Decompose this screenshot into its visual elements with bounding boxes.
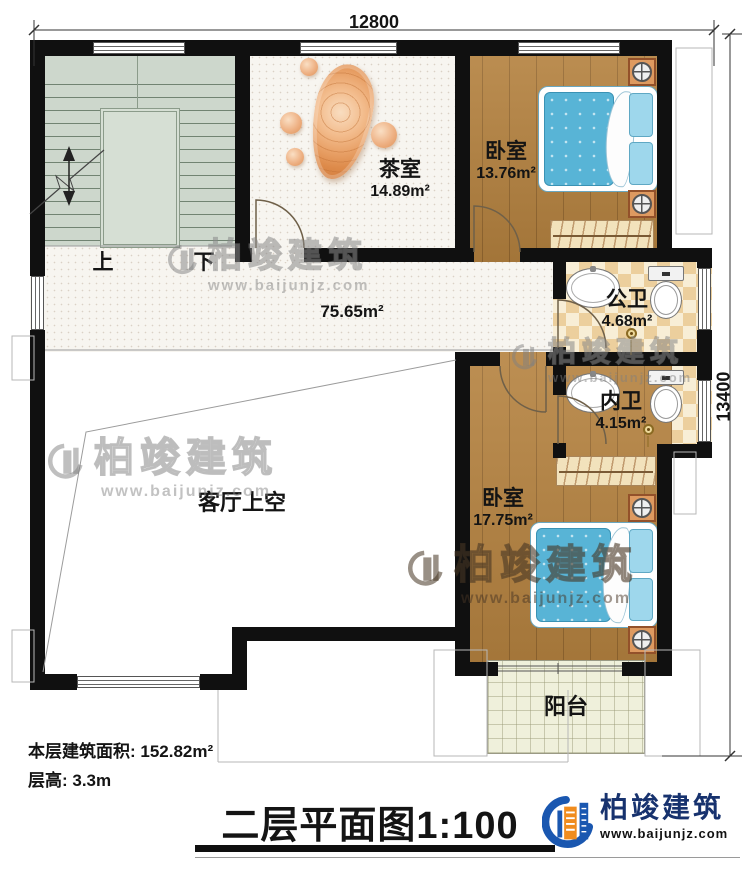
stair-down-label: 下 [194, 251, 215, 276]
exterior-ledge [676, 48, 712, 234]
door-arc [256, 200, 304, 248]
lower-roof-outline [218, 690, 568, 762]
stair-arrow-up [63, 146, 75, 161]
brand-logo: 柏竣建筑 www.baijunjz.com [542, 793, 728, 853]
exterior-ledge [434, 650, 487, 756]
dimension-right-label: 13400 [713, 372, 734, 422]
dimension-top-label: 12800 [349, 12, 399, 33]
void-outline [43, 360, 456, 672]
public-bathroom-label: 公卫 4.68m² [602, 288, 653, 332]
exterior-ledge [674, 452, 696, 514]
title-underline [195, 845, 555, 852]
tea-room-label: 茶室 14.89m² [370, 158, 430, 202]
brand-logo-icon [542, 793, 594, 853]
plan-scale: 1:100 [416, 805, 518, 847]
brand-website: www.baijunjz.com [600, 826, 728, 841]
exterior-ledge [645, 650, 700, 756]
plan-title: 二层平面图1:100 [170, 794, 570, 849]
balcony-label: 阳台 [544, 694, 588, 720]
stair-arrow-down [63, 191, 75, 206]
floor-area-text: 本层建筑面积: 152.82m² [28, 737, 213, 762]
stair-up-label: 上 [93, 251, 114, 276]
bedroom-bottom-label: 卧室 17.75m² [473, 487, 533, 531]
hallway-area-label: 75.65m² [320, 302, 383, 322]
ensuite-bathroom-label: 内卫 4.15m² [596, 390, 647, 434]
title-underline-thin [195, 857, 740, 858]
door-arc [558, 300, 606, 348]
plan-title-text: 二层平面图 [221, 805, 416, 847]
door-arc [474, 206, 520, 252]
door-arc [500, 366, 546, 412]
balcony-sliding-door [498, 663, 622, 674]
living-room-void-label: 客厅上空 [198, 490, 286, 516]
bedroom-top-label: 卧室 13.76m² [476, 140, 536, 184]
brand-name: 柏竣建筑 [600, 793, 728, 824]
floor-plan: 12800 13400 茶室 14.89m² 卧室 13.76m² 公卫 4.6… [0, 0, 750, 872]
exterior-ledge [12, 336, 34, 380]
exterior-ledge [12, 630, 34, 682]
floor-height-text: 层高: 3.3m [28, 766, 111, 791]
